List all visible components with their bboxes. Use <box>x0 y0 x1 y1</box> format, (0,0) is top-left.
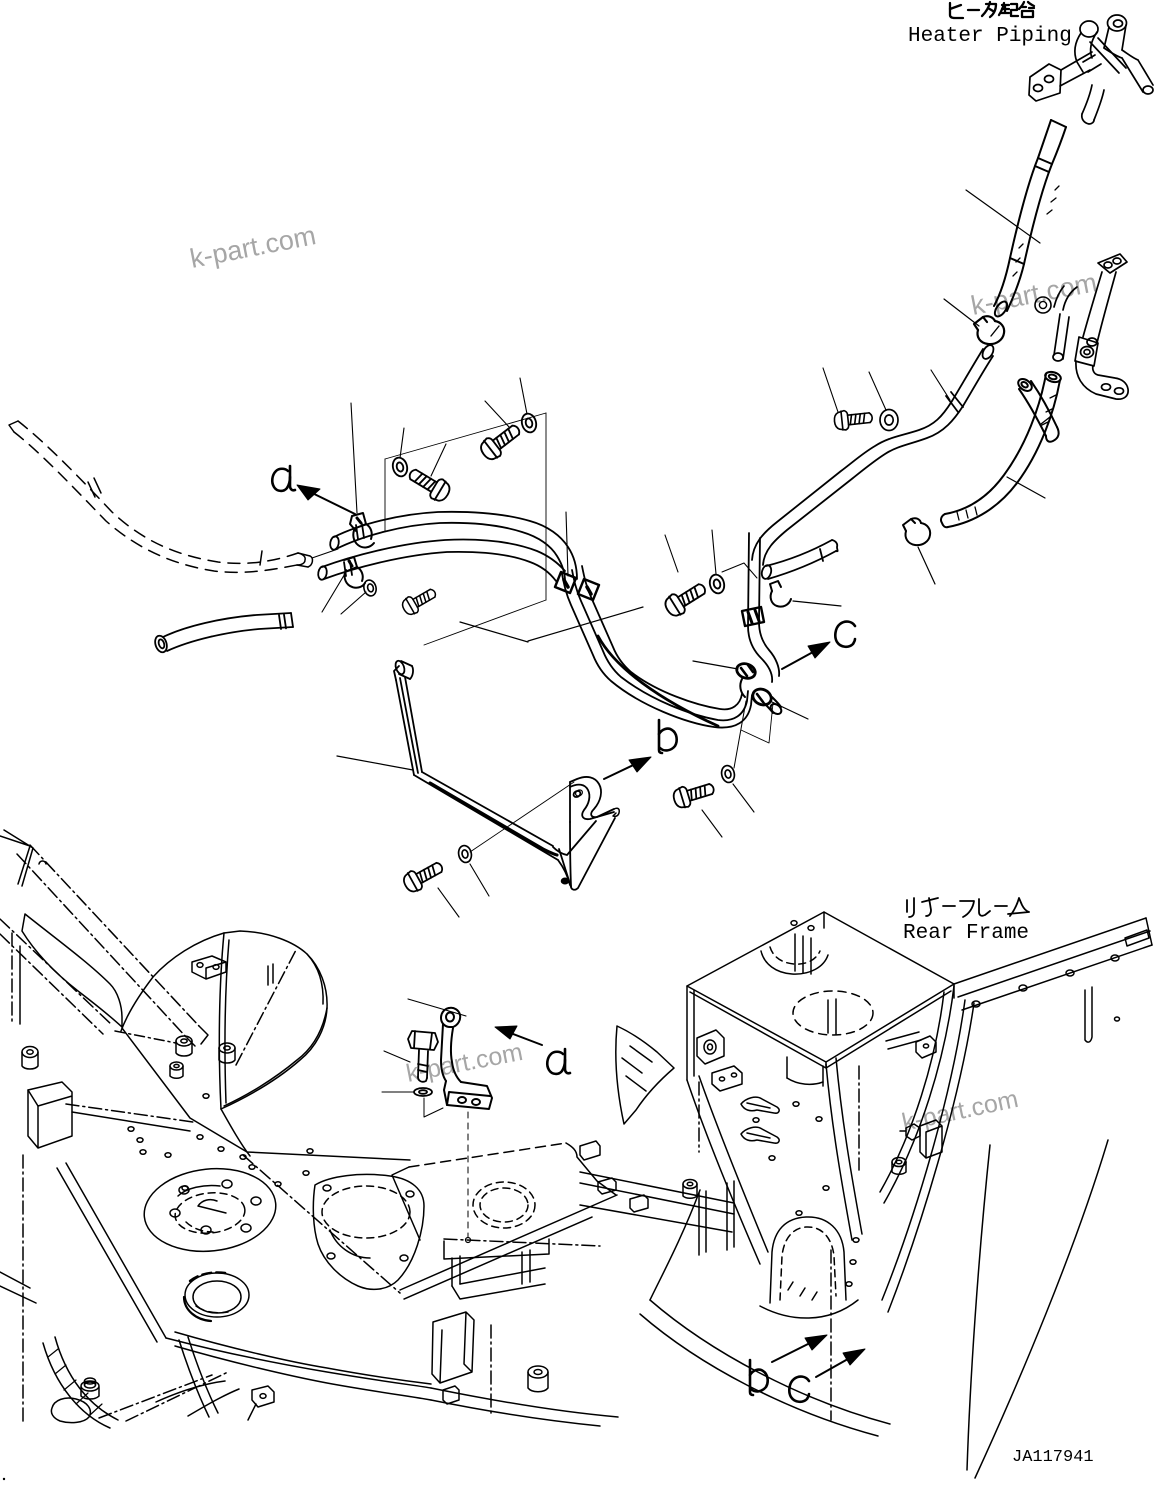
svg-text:JA117941: JA117941 <box>1012 1448 1094 1467</box>
svg-text:k-part.com: k-part.com <box>899 1085 1020 1137</box>
svg-text:k-part.com: k-part.com <box>404 1038 525 1088</box>
svg-text:Rear Frame: Rear Frame <box>903 922 1029 945</box>
svg-text:k-part.com: k-part.com <box>968 267 1099 321</box>
svg-text:k-part.com: k-part.com <box>187 220 318 274</box>
svg-text:Heater Piping: Heater Piping <box>908 25 1072 48</box>
